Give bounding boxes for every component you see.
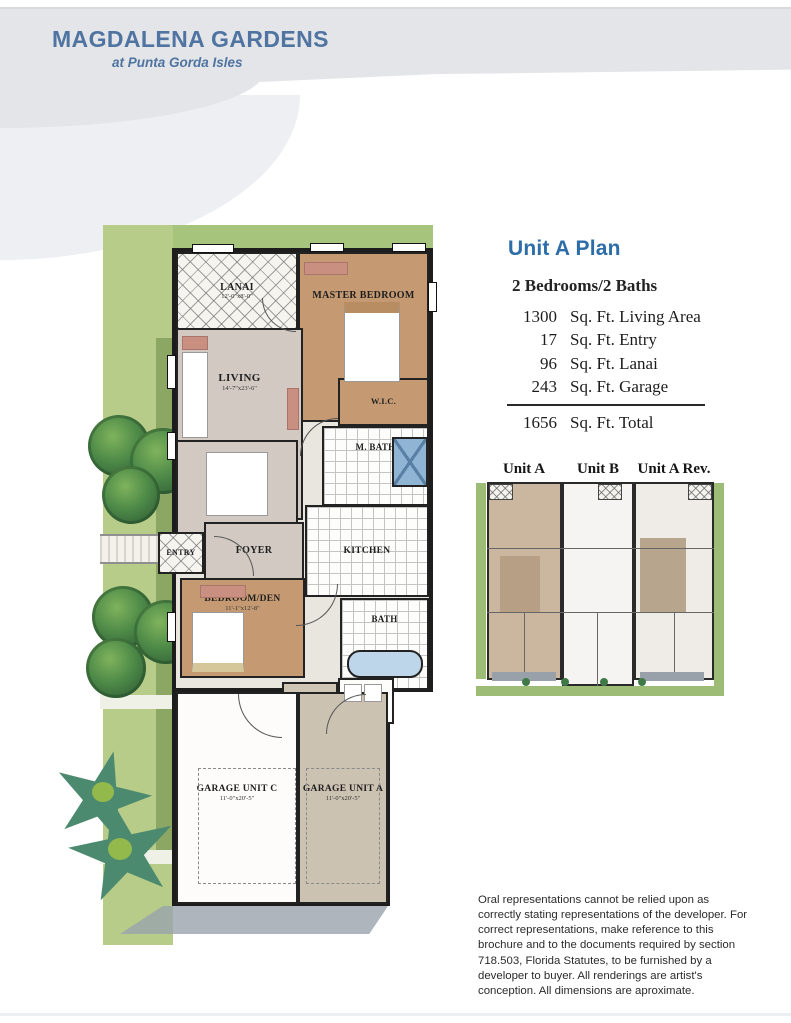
room-wic: W.I.C. bbox=[338, 378, 429, 426]
mini-tan-patch bbox=[640, 538, 686, 612]
dryer bbox=[364, 684, 382, 702]
room-label: BATH bbox=[371, 614, 397, 624]
room-entry: ENTRY bbox=[158, 532, 204, 574]
room-dimension: 14'-7"x23'-6" bbox=[222, 385, 257, 392]
window bbox=[392, 243, 426, 252]
room-label: KITCHEN bbox=[344, 546, 391, 557]
sqft-row: 96Sq. Ft. Lanai bbox=[505, 352, 705, 376]
sqft-label: Sq. Ft. Garage bbox=[570, 377, 668, 397]
room-label: M. BATH bbox=[356, 442, 396, 452]
mini-wall bbox=[562, 548, 634, 549]
mini-lawn-right bbox=[714, 483, 724, 693]
mini-wall bbox=[487, 548, 562, 549]
palm-core bbox=[108, 838, 132, 860]
dining-table bbox=[206, 452, 268, 516]
disclaimer-text: Oral representations cannot be relied up… bbox=[478, 893, 752, 999]
bottom-rule bbox=[0, 1013, 791, 1016]
mini-bush-icon bbox=[561, 678, 569, 686]
brand-title: MAGDALENA GARDENS bbox=[52, 26, 329, 53]
mini-wall bbox=[524, 612, 525, 680]
mini-tan-patch bbox=[500, 556, 540, 612]
room-label: W.I.C. bbox=[371, 397, 396, 407]
bed-master bbox=[344, 302, 400, 382]
sqft-label: Sq. Ft. Living Area bbox=[570, 307, 701, 327]
mini-bush-icon bbox=[600, 678, 608, 686]
palm-core bbox=[92, 782, 114, 802]
sqft-value: 17 bbox=[505, 330, 557, 350]
tree-icon bbox=[86, 638, 146, 698]
brochure-page: MAGDALENA GARDENS at Punta Gorda Isles L… bbox=[0, 0, 791, 1023]
sqft-total-label: Sq. Ft. Total bbox=[570, 413, 654, 433]
window bbox=[167, 612, 176, 642]
sqft-row: 17Sq. Ft. Entry bbox=[505, 329, 705, 353]
mini-bush-icon bbox=[522, 678, 530, 686]
sqft-total-row: 1656 Sq. Ft. Total bbox=[505, 411, 705, 435]
room-label: MASTER BEDROOM bbox=[312, 290, 414, 302]
bathtub bbox=[347, 650, 423, 678]
window bbox=[192, 244, 234, 253]
mini-wall bbox=[597, 612, 598, 686]
unit-plan-title: Unit A Plan bbox=[508, 237, 621, 261]
sqft-value: 1300 bbox=[505, 307, 557, 327]
sqft-label: Sq. Ft. Entry bbox=[570, 330, 657, 350]
dresser bbox=[200, 585, 246, 598]
room-label: ENTRY bbox=[166, 548, 195, 557]
sqft-row: 243Sq. Ft. Garage bbox=[505, 376, 705, 400]
mini-wall bbox=[562, 612, 634, 613]
mini-unit-b bbox=[562, 482, 634, 686]
beds-baths: 2 Bedrooms/2 Baths bbox=[512, 276, 657, 296]
room-dimension: 12'-0"x8'-0" bbox=[221, 293, 252, 300]
sqft-divider bbox=[507, 404, 705, 406]
garage-stall-outline bbox=[306, 768, 380, 884]
sqft-table: 1300Sq. Ft. Living Area17Sq. Ft. Entry96… bbox=[505, 305, 705, 435]
sqft-value: 243 bbox=[505, 377, 557, 397]
room-label: LIVING bbox=[218, 372, 260, 385]
building-shadow bbox=[120, 906, 388, 934]
window bbox=[167, 432, 176, 460]
window bbox=[167, 355, 176, 389]
garage-stall-outline bbox=[198, 768, 296, 884]
tree-icon bbox=[102, 466, 160, 524]
brand-subtitle: at Punta Gorda Isles bbox=[112, 55, 243, 70]
sqft-total-value: 1656 bbox=[505, 413, 557, 433]
armchair bbox=[182, 336, 208, 350]
sqft-row: 1300Sq. Ft. Living Area bbox=[505, 305, 705, 329]
window bbox=[310, 243, 344, 252]
mini-lanai-hatch bbox=[688, 484, 712, 500]
sqft-rows: 1300Sq. Ft. Living Area17Sq. Ft. Entry96… bbox=[505, 305, 705, 399]
top-rule bbox=[0, 7, 791, 9]
mini-unit-label: Unit A Rev. bbox=[638, 461, 711, 478]
mini-wall bbox=[634, 548, 714, 549]
shower bbox=[392, 437, 428, 487]
mini-unit-label: Unit A bbox=[503, 461, 545, 478]
mini-lanai-hatch bbox=[598, 484, 622, 500]
console-table bbox=[287, 388, 299, 430]
room-label: LANAI bbox=[220, 282, 254, 294]
mini-lawn-left bbox=[476, 483, 486, 679]
mini-lanai-hatch bbox=[489, 484, 513, 500]
sqft-value: 96 bbox=[505, 354, 557, 374]
mini-bush-icon bbox=[638, 678, 646, 686]
mini-lawn-bottom bbox=[476, 686, 724, 696]
bed-den bbox=[192, 612, 244, 672]
dresser bbox=[304, 262, 348, 275]
mini-unit-label: Unit B bbox=[577, 461, 619, 478]
sofa bbox=[182, 352, 208, 438]
mini-wall bbox=[674, 612, 675, 680]
sqft-label: Sq. Ft. Lanai bbox=[570, 354, 658, 374]
mini-driveway bbox=[640, 672, 704, 681]
window bbox=[428, 282, 437, 312]
